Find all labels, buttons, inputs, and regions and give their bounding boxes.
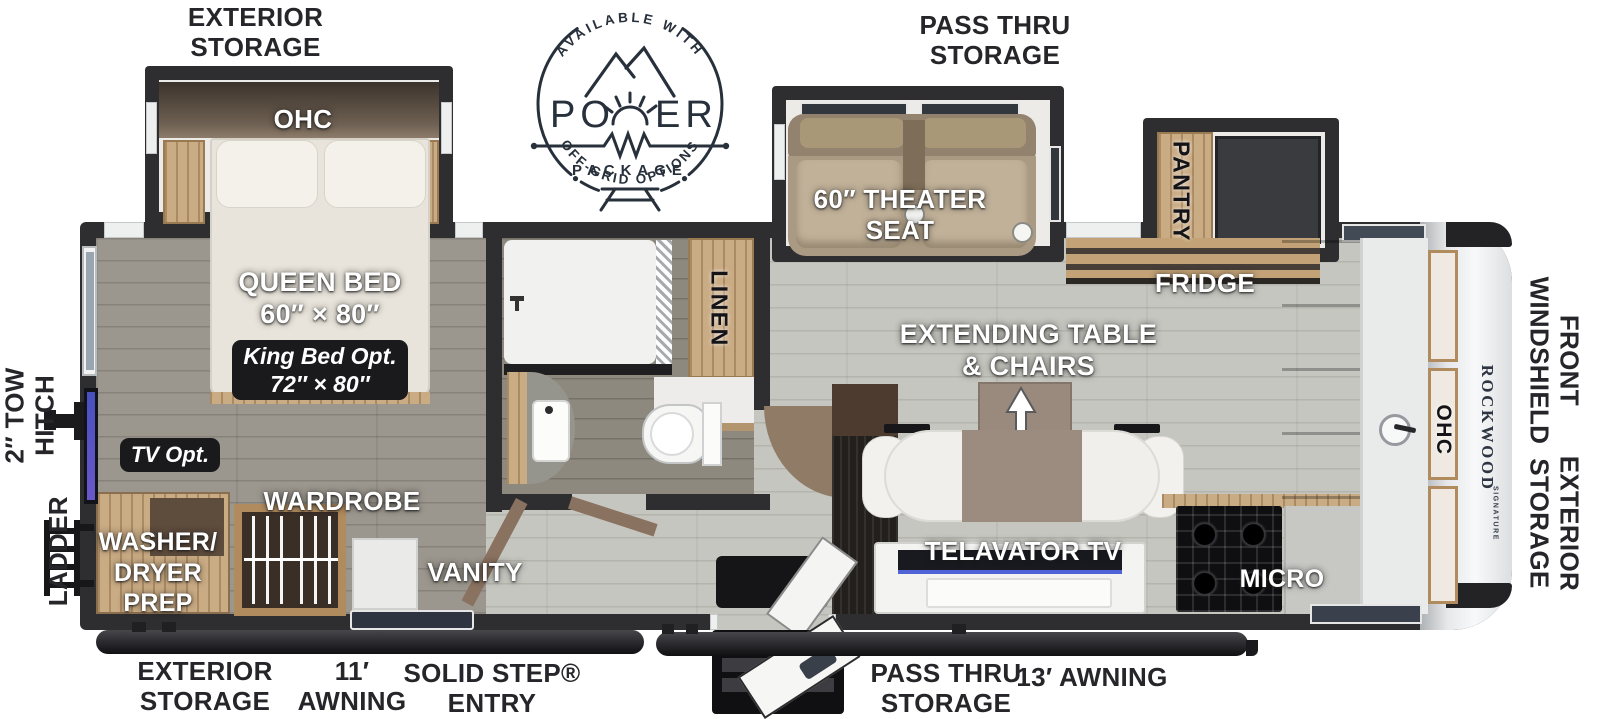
label-tow-hitch: 2″ TOW HITCH — [0, 340, 60, 490]
front-ohc-panel — [1428, 250, 1458, 362]
label-extending-table: EXTENDING TABLE & CHAIRS — [896, 318, 1161, 383]
cupholder — [1012, 222, 1033, 243]
badge-power-po: PO — [550, 94, 615, 136]
tow-hitch-plate — [74, 402, 84, 440]
label-ladder: LADDER — [43, 491, 73, 611]
vanity-window — [350, 610, 474, 630]
bedroom-tv-screen — [87, 392, 95, 500]
label-pantry: PANTRY — [1168, 132, 1195, 252]
label-solid-step: SOLID STEP® ENTRY — [392, 658, 592, 719]
theater-slide-window-left — [774, 124, 785, 180]
power-package-badge: AVAILABLE WITH OFF-GRID OPTIONS PO ER PA… — [520, 0, 740, 212]
label-pass-thru-top: PASS THRU STORAGE — [860, 10, 1130, 71]
rail-end-hook — [1246, 640, 1258, 656]
badge-power-er: ER — [655, 94, 718, 136]
label-ohc-front: OHC — [1431, 395, 1455, 465]
label-telavator-tv: TELAVATOR TV — [898, 536, 1148, 567]
label-micro: MICRO — [1212, 564, 1352, 594]
label-exterior-storage-top: EXTERIOR STORAGE — [133, 2, 378, 63]
theater-headrest-right — [922, 118, 1026, 148]
badge-available-text: AVAILABLE WITH — [553, 10, 707, 59]
rv-floorplan: AVAILABLE WITH OFF-GRID OPTIONS PO ER PA… — [0, 0, 1600, 719]
rail-bracket — [686, 624, 698, 634]
credenza-drawer — [926, 578, 1112, 608]
bath-wall-bottom-b — [646, 494, 770, 510]
kitchen-bottom-window — [1310, 604, 1422, 624]
label-vanity: VANITY — [395, 557, 555, 588]
shower-head-stem — [515, 301, 519, 311]
rear-window-glass — [86, 252, 94, 370]
label-ohc-bed: OHC — [243, 104, 363, 135]
label-wardrobe: WARDROBE — [242, 486, 442, 517]
kitchen-tall-cabinets — [1282, 240, 1362, 506]
sidewall-segment — [455, 222, 483, 238]
rail-bracket — [662, 624, 674, 634]
bath-faucet — [545, 406, 553, 414]
rail-bracket — [162, 622, 176, 632]
awning-rail-11ft — [96, 630, 644, 654]
range-cooktop — [1176, 506, 1282, 612]
bedroom-slide-window-left — [146, 102, 157, 154]
bed-pillow-right — [324, 140, 426, 208]
badge-package-text: PACKAGE — [572, 162, 688, 179]
wardrobe-rod — [244, 558, 338, 561]
king-bed-option-badge: King Bed Opt. 72″ × 80″ — [232, 340, 408, 400]
label-awning-13: 13′ AWNING — [992, 662, 1192, 692]
label-front-windshield: FRONT WINDSHIELD — [1524, 265, 1585, 455]
theater-console — [903, 120, 925, 190]
bed-pillow-left — [216, 140, 318, 208]
table-runner — [962, 430, 1082, 522]
awning-rail-13ft — [656, 632, 1248, 656]
sidewall-segment — [104, 222, 144, 238]
bath-wall-bottom-a — [486, 494, 572, 510]
label-exterior-storage-right: EXTERIOR STORAGE — [1524, 443, 1585, 603]
kitchen-counter-grey — [1284, 506, 1370, 614]
theater-side-window — [1049, 146, 1061, 222]
bath-wall-left — [486, 222, 502, 512]
rail-bracket — [132, 622, 146, 632]
refrigerator — [1215, 136, 1321, 244]
toilet-seat — [650, 412, 694, 456]
bath-sink-ledge — [507, 372, 527, 484]
theater-headrest-left — [800, 118, 904, 148]
front-ohc-panel — [1428, 486, 1458, 604]
door-jamb — [710, 614, 718, 630]
label-fridge: FRIDGE — [1120, 268, 1290, 299]
tv-option-badge: TV Opt. — [120, 438, 220, 472]
cap-trim-top — [1446, 222, 1512, 247]
nightstand-left — [163, 140, 205, 224]
label-queen-bed: QUEEN BED 60″ × 80″ — [210, 266, 430, 331]
bedroom-slide-window-right — [441, 102, 452, 154]
toilet-tank — [702, 402, 722, 466]
rockwood-logo-text: ROCKWOOD — [1477, 363, 1497, 493]
signature-logo-text: SIGNATURE — [1492, 484, 1499, 544]
tv-glow-strip — [898, 570, 1122, 574]
label-washer-dryer: WASHER/ DRYER PREP — [88, 527, 228, 619]
sidewall-segment — [1066, 222, 1141, 238]
bath-wall-right — [754, 222, 770, 410]
rail-bracket — [952, 624, 966, 634]
label-theater-seat: 60″ THEATER SEAT — [800, 184, 1000, 246]
label-linen: LINEN — [706, 244, 733, 374]
shower-pan — [504, 240, 656, 364]
shower-glass — [656, 240, 672, 364]
